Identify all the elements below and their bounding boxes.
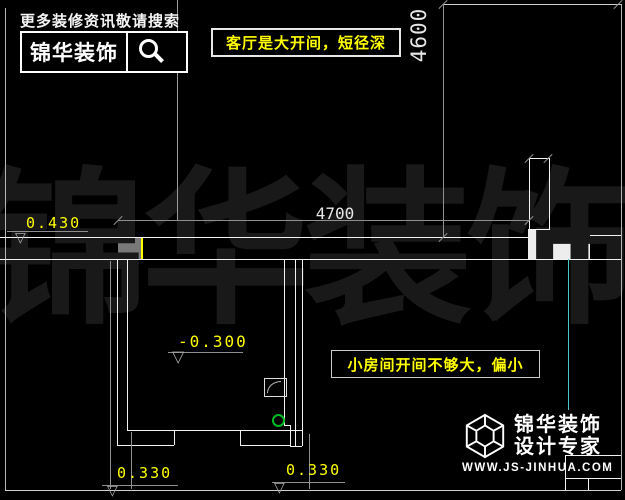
dim-text-4600: 4600 (407, 6, 433, 64)
note-small-room: 小房间开间不够大，偏小 (331, 350, 540, 378)
cyan-reference-line (568, 259, 569, 410)
extension-line-left (110, 261, 111, 489)
room-sill-right-edge (240, 430, 241, 445)
footer-brand: 锦华装饰 设计专家 WWW.JS-JINHUA.COM (462, 413, 613, 474)
magnifier-handle (154, 53, 164, 63)
elevation-triangle-bottom-left: ▽ (107, 483, 118, 497)
stair-step-line-3 (565, 478, 621, 479)
stair-step-line-4 (588, 478, 589, 490)
header-brand-name: 锦华装饰 (22, 33, 126, 71)
room-wall-bottom-inner (127, 430, 302, 431)
room-corner-step-side (290, 425, 291, 446)
header-tagline: 更多装修资讯敬请搜索 (20, 10, 180, 31)
room-wall-right-outer (302, 259, 303, 446)
elevation-triangle-upper: ▽ (15, 230, 26, 244)
border-bottom-line (5, 490, 621, 491)
room-wall-left-outer (117, 259, 118, 446)
wall-line-top-right (590, 235, 621, 236)
elevation-triangle-bottom-right: ▽ (274, 480, 285, 494)
room-wall-right-mid (295, 259, 296, 447)
room-sill-right-bottom (240, 445, 290, 446)
dim-line-4600 (443, 4, 444, 237)
wall-line-bottom (0, 259, 621, 260)
elevation-text-room: -0.300 (178, 332, 248, 351)
room-corner-step-bottom (290, 446, 302, 447)
footer-brand-line1: 锦华装饰 (514, 414, 602, 436)
header-brand-box: 锦华装饰 (20, 31, 188, 73)
border-left-line (5, 8, 6, 491)
border-top-right-line (443, 4, 621, 5)
room-sill-left-bottom (117, 445, 174, 446)
cad-floorplan-canvas: 锦华装饰 4600 4700 0.430 ▽ -0.300 (0, 0, 625, 500)
room-wall-right-inner (284, 259, 285, 425)
pier-outline (529, 158, 550, 230)
wall-line-top (0, 237, 529, 238)
green-circle-marker (272, 414, 285, 427)
elevation-triangle-room: ▽ (172, 350, 184, 366)
cube-logo-icon (462, 413, 508, 459)
magnifier-icon (128, 33, 186, 71)
footer-brand-line2: 设计专家 (514, 436, 602, 458)
footer-website: WWW.JS-JINHUA.COM (462, 462, 613, 474)
room-sill-left-edge (174, 430, 175, 445)
note-living-room: 客厅是大开间，短径深 (211, 28, 401, 57)
dim-text-4700: 4700 (300, 204, 370, 223)
border-right-line (621, 4, 622, 490)
elevation-text-bottom-left: 0.330 (117, 464, 172, 482)
elevation-text-bottom-right: 0.330 (286, 461, 341, 479)
elevation-text-upper: 0.430 (26, 214, 81, 232)
room-wall-left-inner (127, 259, 128, 430)
